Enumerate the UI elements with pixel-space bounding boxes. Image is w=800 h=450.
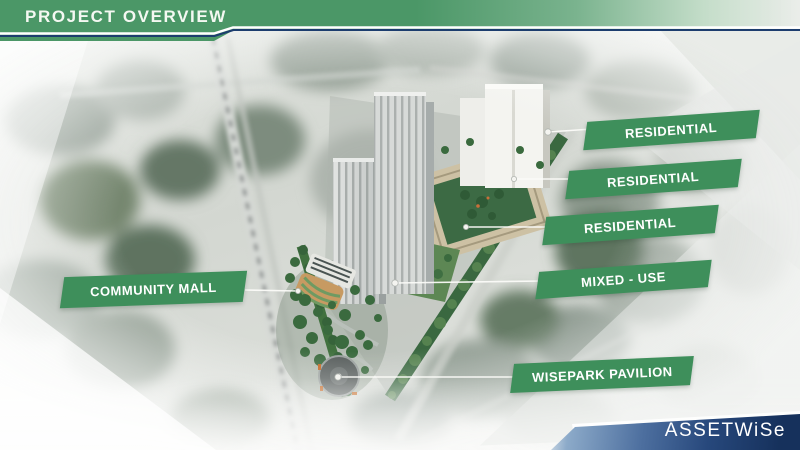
- tower-center: [374, 92, 434, 294]
- label-residential-2-text: RESIDENTIAL: [607, 168, 700, 189]
- label-residential-3-text: RESIDENTIAL: [584, 214, 677, 235]
- label-mixed-use-text: MIXED - USE: [581, 269, 667, 290]
- label-community-mall: COMMUNITY MALL: [60, 271, 247, 309]
- wisepark-pavilion-plaza: [318, 356, 359, 396]
- assetwise-logo: ASSETWiSe: [665, 420, 786, 442]
- label-community-mall-text: COMMUNITY MALL: [90, 280, 217, 299]
- label-residential-1-text: RESIDENTIAL: [625, 119, 718, 140]
- brand-footer: ASSETWiSe: [540, 403, 800, 450]
- tower-white: [460, 84, 550, 188]
- label-wisepark-pavilion-text: WISEPARK PAVILION: [531, 364, 672, 385]
- slide: PROJECT OVERVIEW RESIDENTIAL RESIDENTIAL…: [0, 0, 800, 450]
- page-title: PROJECT OVERVIEW: [25, 7, 227, 27]
